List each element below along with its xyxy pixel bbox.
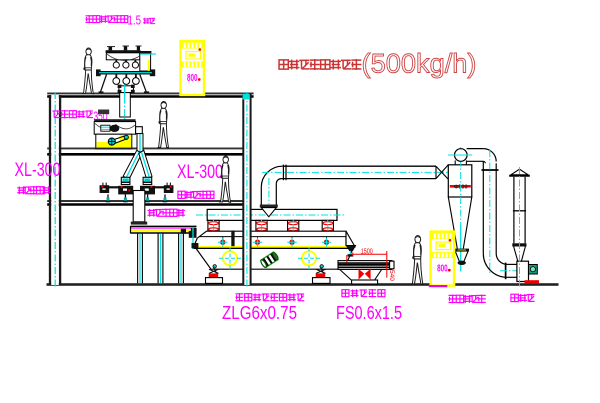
svg-text:XL-300: XL-300	[177, 162, 223, 183]
svg-text:1.5: 1.5	[128, 13, 142, 28]
svg-text:ZLG6x0.75: ZLG6x0.75	[222, 302, 297, 323]
svg-text:800: 800	[437, 264, 448, 275]
svg-text:540: 540	[388, 270, 395, 281]
svg-text:800: 800	[187, 73, 198, 84]
svg-text:1500: 1500	[361, 248, 373, 255]
svg-text:FS0.6x1.5: FS0.6x1.5	[336, 302, 402, 323]
svg-text:XL-300: XL-300	[15, 160, 61, 181]
svg-text:(500kg/h): (500kg/h)	[362, 49, 477, 79]
